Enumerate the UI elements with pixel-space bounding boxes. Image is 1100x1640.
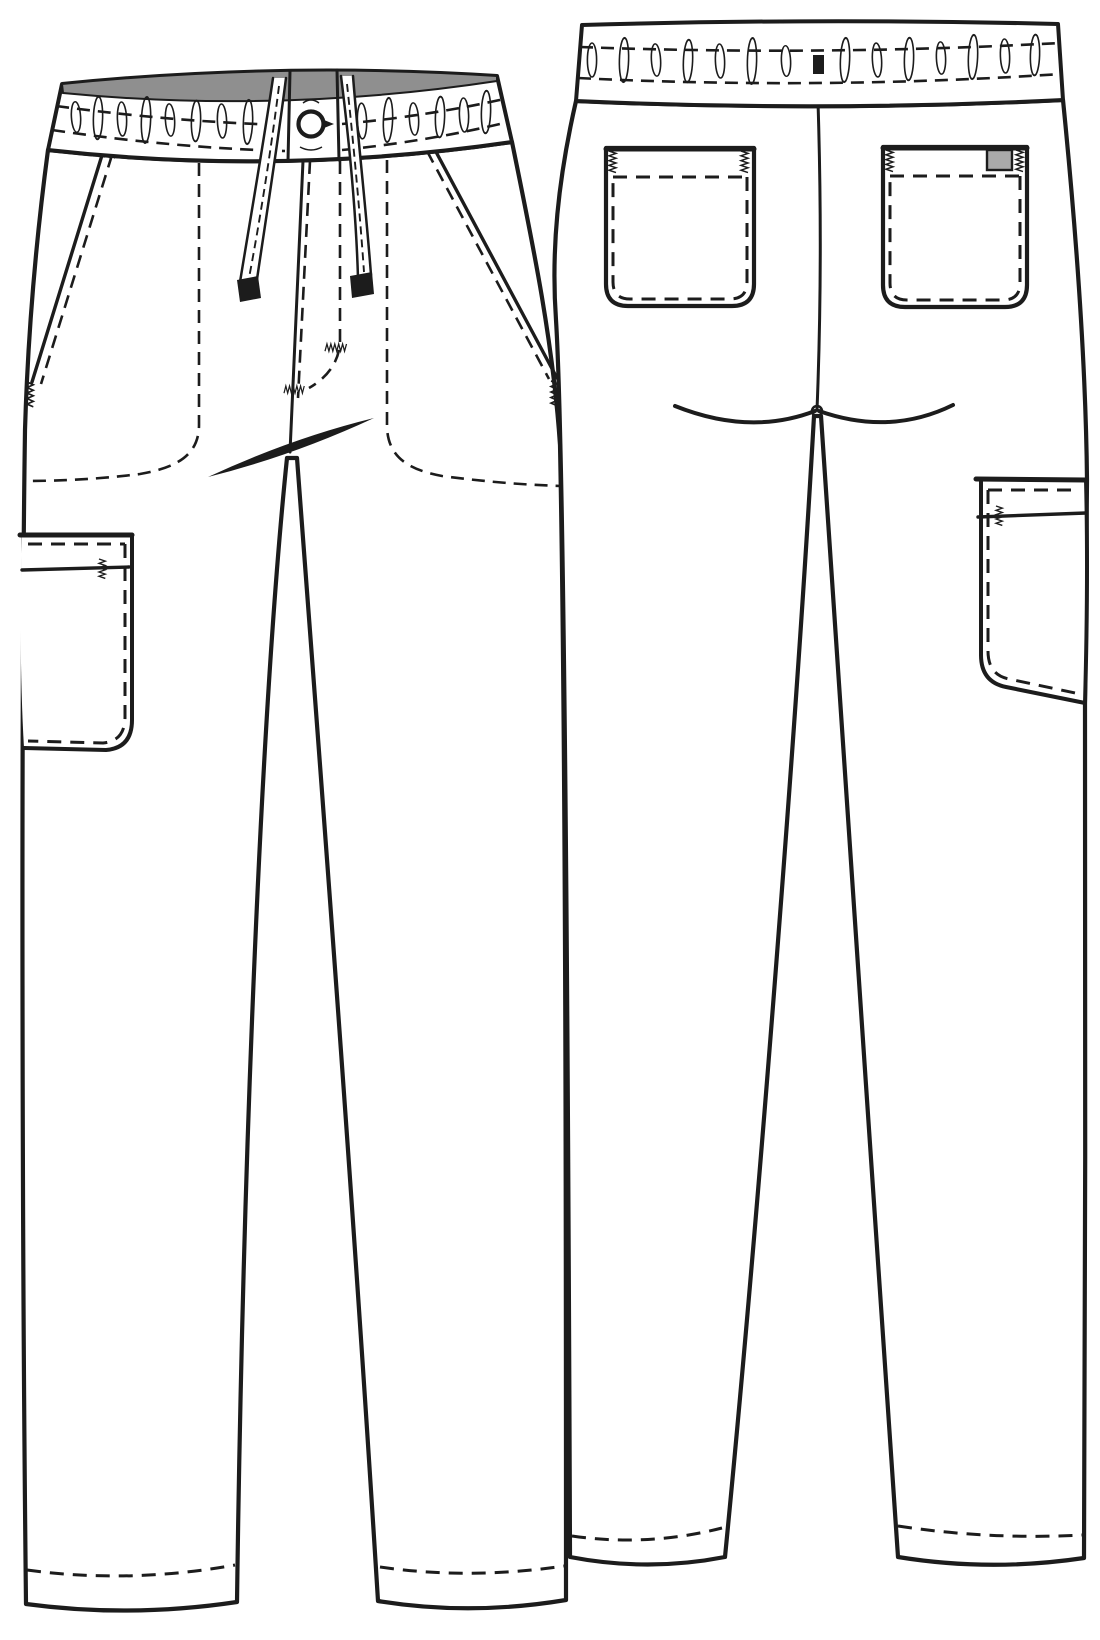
brand-label-patch <box>987 150 1012 170</box>
grommet-ring <box>299 112 324 137</box>
drawstring-aglet-left <box>237 276 261 302</box>
drawstring-aglet-right <box>350 272 374 298</box>
patch-pocket-left <box>606 148 754 306</box>
hang-loop <box>813 55 824 74</box>
scrub-pants-flat-sketch <box>0 0 1100 1640</box>
cargo-pocket-back <box>976 479 1087 703</box>
sketch-canvas <box>0 0 1100 1640</box>
patch-pocket-right <box>883 147 1027 307</box>
waistband-panel-seam-right <box>337 70 339 160</box>
cargo-pocket-front <box>20 535 132 750</box>
waistband-panel-seam-left <box>288 71 290 161</box>
